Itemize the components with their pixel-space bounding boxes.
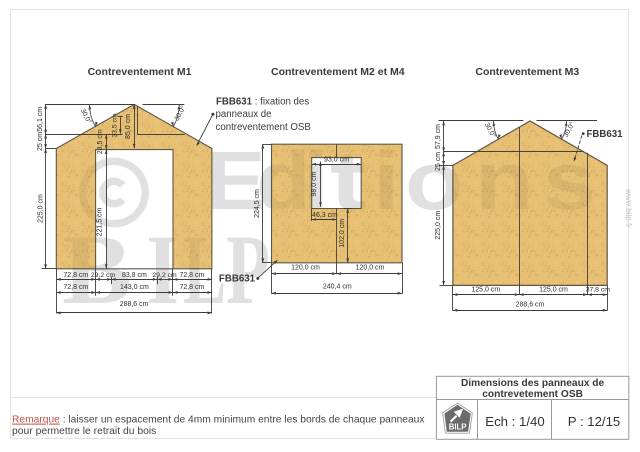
svg-text:85,0 cm: 85,0 cm xyxy=(125,114,132,139)
svg-text:pour permettre le retrait du b: pour permettre le retrait du bois xyxy=(12,426,156,437)
svg-text:125,0 cm: 125,0 cm xyxy=(539,287,568,294)
svg-text:143,0 cm: 143,0 cm xyxy=(120,284,149,291)
svg-text:contrevetement OSB: contrevetement OSB xyxy=(482,389,583,400)
svg-text:Contreventement M3: Contreventement M3 xyxy=(475,66,579,78)
svg-text:Dimensions des panneaux de: Dimensions des panneaux de xyxy=(461,378,605,389)
svg-text:120,0 cm: 120,0 cm xyxy=(291,265,320,272)
svg-text:P: P xyxy=(226,213,270,324)
svg-text:221,5 cm: 221,5 cm xyxy=(97,207,104,236)
svg-text:98,0 cm: 98,0 cm xyxy=(311,171,318,196)
svg-text:FBB631 : fixation des: FBB631 : fixation des xyxy=(216,97,309,108)
svg-text:P : 12/15: P : 12/15 xyxy=(568,414,621,429)
svg-text:288,6 cm: 288,6 cm xyxy=(120,301,149,308)
svg-text:25 cm: 25 cm xyxy=(435,152,442,171)
svg-text:Contreventement M2 et M4: Contreventement M2 et M4 xyxy=(271,66,405,78)
svg-text:i: i xyxy=(373,134,400,227)
svg-text:37,8 cm: 37,8 cm xyxy=(586,287,611,294)
svg-text:FBB631: FBB631 xyxy=(587,129,624,140)
svg-text:72,8 cm: 72,8 cm xyxy=(63,272,88,279)
svg-text:120,0 cm: 120,0 cm xyxy=(356,265,385,272)
svg-text:125,0 cm: 125,0 cm xyxy=(471,287,500,294)
svg-text:Ech : 1/40: Ech : 1/40 xyxy=(485,414,544,429)
svg-text:panneaux de: panneaux de xyxy=(216,109,272,120)
svg-text:288,6 cm: 288,6 cm xyxy=(516,301,545,308)
svg-text:72,8 cm: 72,8 cm xyxy=(179,272,204,279)
svg-text:240,4 cm: 240,4 cm xyxy=(323,284,352,291)
svg-text:Remarque : laisser un espaceme: Remarque : laisser un espacement de 4mm … xyxy=(12,415,425,426)
svg-text:28,5 cm: 28,5 cm xyxy=(97,129,104,154)
svg-text:46,3 cm: 46,3 cm xyxy=(312,212,337,219)
svg-text:83,8 cm: 83,8 cm xyxy=(122,272,147,279)
svg-text:n: n xyxy=(475,134,533,227)
svg-text:29,2 cm: 29,2 cm xyxy=(91,272,116,279)
svg-text:72,8 cm: 72,8 cm xyxy=(63,284,88,291)
svg-text:56,1 cm: 56,1 cm xyxy=(37,107,44,132)
svg-text:102,0 cm: 102,0 cm xyxy=(339,219,346,248)
svg-text:www.bilp.fr: www.bilp.fr xyxy=(624,188,633,228)
svg-text:225,0 cm: 225,0 cm xyxy=(435,211,442,240)
svg-text:57,9 cm: 57,9 cm xyxy=(435,124,442,149)
svg-text:33,5 cm: 33,5 cm xyxy=(111,113,118,138)
svg-text:Contreventement M1: Contreventement M1 xyxy=(88,66,192,78)
svg-text:93,0 cm: 93,0 cm xyxy=(324,157,349,164)
svg-text:I: I xyxy=(146,215,179,326)
svg-text:29,2 cm: 29,2 cm xyxy=(153,272,178,279)
svg-text:224,5 cm: 224,5 cm xyxy=(254,189,261,218)
svg-text:s: s xyxy=(543,134,596,227)
svg-text:72,8 cm: 72,8 cm xyxy=(179,284,204,291)
svg-text:FBB631: FBB631 xyxy=(219,274,256,285)
svg-text:L: L xyxy=(183,215,226,325)
svg-text:225,0 cm: 225,0 cm xyxy=(38,194,45,223)
svg-text:BILP: BILP xyxy=(449,422,467,431)
svg-text:25 cm: 25 cm xyxy=(37,132,44,151)
svg-text:contreventement OSB: contreventement OSB xyxy=(216,122,311,133)
